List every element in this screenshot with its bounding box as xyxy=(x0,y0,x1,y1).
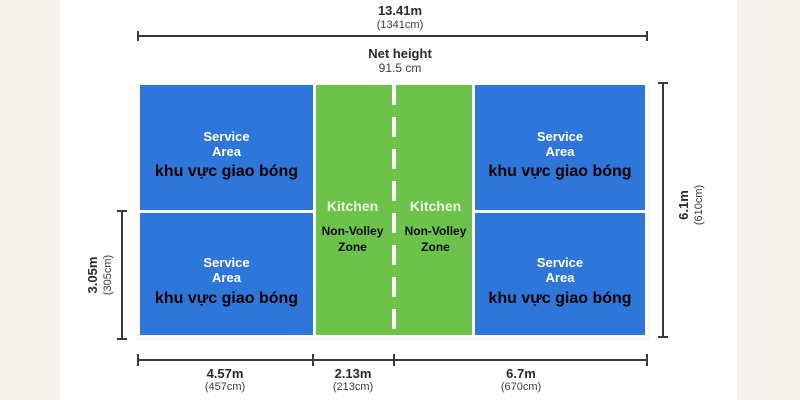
service-area-bottom-left: Service Area khu vực giao bóng xyxy=(140,213,313,335)
service-area-label: Area xyxy=(546,271,575,286)
top-dimension-cm: (1341cm) xyxy=(300,19,500,31)
court: Service Area khu vực giao bóng Service A… xyxy=(137,82,648,338)
net-line-tick xyxy=(393,354,395,366)
segment-meters: 2.13m xyxy=(283,367,423,381)
zone-line: Zone xyxy=(421,240,450,254)
service-area-vietnamese-label: khu vực giao bóng xyxy=(488,290,631,308)
dimension-line-cap xyxy=(137,354,139,366)
kitchen-line-tick xyxy=(312,354,314,366)
non-volley-line: Non-Volley xyxy=(322,224,384,238)
left-dimension-line xyxy=(121,210,123,340)
segment-cm: (213cm) xyxy=(283,381,423,393)
service-area-vietnamese-label: khu vực giao bóng xyxy=(155,163,298,181)
segment-meters: 6.7m xyxy=(451,367,591,381)
service-area-vietnamese-label: khu vực giao bóng xyxy=(155,290,298,308)
service-area-label: Service xyxy=(537,130,583,145)
service-area-bottom-right: Service Area khu vực giao bóng xyxy=(475,213,645,335)
service-area-label: Area xyxy=(212,271,241,286)
kitchen-label-left: Kitchen Non-Volley Zone xyxy=(313,85,392,335)
right-dimension-label: 6.1m (610cm) xyxy=(673,155,709,255)
service-area-label: Service xyxy=(537,256,583,271)
dimension-line-cap xyxy=(646,31,648,41)
top-dimension-line xyxy=(137,35,648,37)
segment-meters: 4.57m xyxy=(155,367,295,381)
segment-cm: (670cm) xyxy=(451,381,591,393)
bottom-dimension-segment-2: 2.13m (213cm) xyxy=(283,367,423,393)
net-height-value: 91.5 cm xyxy=(300,62,500,75)
dimension-line-cap xyxy=(658,82,668,84)
service-area-label: Service xyxy=(203,130,249,145)
kitchen-title: Kitchen xyxy=(410,198,461,214)
dimension-line-cap xyxy=(117,210,127,212)
service-area-top-right: Service Area khu vực giao bóng xyxy=(475,85,645,210)
bottom-dimension-segment-3: 6.7m (670cm) xyxy=(451,367,591,393)
service-area-label: Area xyxy=(212,145,241,160)
kitchen-label-right: Kitchen Non-Volley Zone xyxy=(396,85,475,335)
kitchen-title: Kitchen xyxy=(327,198,378,214)
top-dimension-meters: 13.41m xyxy=(300,4,500,18)
left-dimension-meters: 3.05m xyxy=(86,257,100,294)
zone-line: Zone xyxy=(338,240,367,254)
non-volley-zone-label: Non-Volley Zone xyxy=(405,224,467,255)
net-height-label: Net height xyxy=(300,47,500,61)
service-area-label: Service xyxy=(203,256,249,271)
non-volley-line: Non-Volley xyxy=(405,224,467,238)
right-dimension-meters: 6.1m xyxy=(677,190,691,220)
segment-cm: (457cm) xyxy=(155,381,295,393)
bottom-dimension-segment-1: 4.57m (457cm) xyxy=(155,367,295,393)
pickleball-court-diagram: 13.41m (1341cm) Net height 91.5 cm Servi… xyxy=(0,0,800,400)
left-dimension-cm: (305cm) xyxy=(102,255,114,295)
right-dimension-line xyxy=(662,82,664,338)
service-area-label: Area xyxy=(546,145,575,160)
service-area-vietnamese-label: khu vực giao bóng xyxy=(488,163,631,181)
bottom-dimension-line xyxy=(137,359,648,361)
dimension-line-cap xyxy=(117,338,127,340)
left-dimension-label: 3.05m (305cm) xyxy=(82,225,118,325)
non-volley-zone-label: Non-Volley Zone xyxy=(322,224,384,255)
dimension-line-cap xyxy=(137,31,139,41)
dimension-line-cap xyxy=(646,354,648,366)
right-dimension-cm: (610cm) xyxy=(693,185,705,225)
service-area-top-left: Service Area khu vực giao bóng xyxy=(140,85,313,210)
dimension-line-cap xyxy=(658,336,668,338)
